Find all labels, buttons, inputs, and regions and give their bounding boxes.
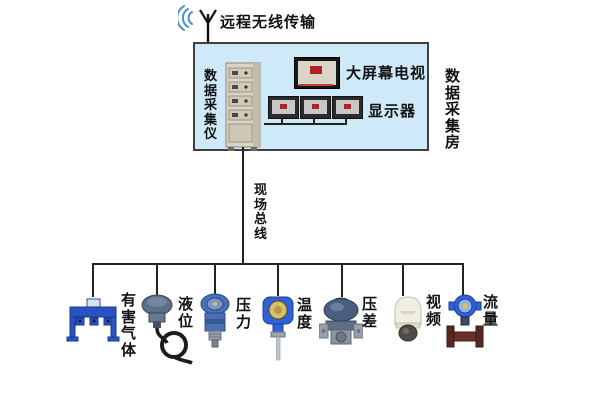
daq-instrument-label: 数据采集仪: [202, 70, 219, 143]
monitor-icon: [332, 96, 363, 119]
drop-line-temperature: [277, 263, 279, 296]
device-label-video: 视频: [425, 294, 442, 327]
big-screen-tv-icon: [294, 57, 340, 89]
monitor-icon: [300, 96, 331, 119]
video-camera-icon: [391, 295, 425, 345]
differential-pressure-sensor-icon: [319, 296, 363, 350]
tv-caption-strip: [299, 84, 333, 86]
daq-cabinet-icon: [224, 61, 264, 152]
device-label-differential-pressure: 压差: [361, 296, 378, 329]
device-label-harmful-gas: 有害气体: [120, 292, 137, 358]
flow-meter-icon: [445, 294, 485, 352]
fieldbus-label: 现场总线: [252, 184, 269, 242]
tv-label: 大屏幕电视: [346, 62, 426, 83]
wireless-transmission-label: 远程无线传输: [220, 11, 316, 32]
device-label-temperature: 温度: [296, 297, 313, 330]
cabinet-monitor-cable: [264, 123, 347, 125]
drop-line-video: [402, 263, 404, 296]
tv-logo: [310, 66, 322, 74]
temperature-sensor-icon: [260, 295, 296, 361]
device-label-flow: 流量: [482, 294, 499, 327]
pressure-sensor-icon: [199, 293, 231, 351]
acquisition-room-label: 数据采集房: [444, 68, 461, 151]
drop-line-differential-pressure: [341, 263, 343, 297]
drop-line-pressure: [214, 263, 216, 295]
device-label-pressure: 压力: [235, 297, 252, 330]
drop-line-harmful-gas: [92, 263, 94, 297]
device-label-liquid-level: 液位: [177, 296, 194, 329]
harmful-gas-sensor-icon: [66, 296, 120, 344]
monitors-label: 显示器: [368, 100, 416, 121]
monitor-icon: [268, 96, 299, 119]
antenna-icon: [178, 4, 224, 42]
drop-line-flow: [462, 263, 464, 295]
fieldbus-trunk-line: [242, 147, 244, 265]
drop-line-liquid-level: [156, 263, 158, 296]
diagram-canvas: 远程无线传输 数据采集仪 大屏幕电视 显示器 数据采集房 现场总线: [0, 0, 600, 400]
